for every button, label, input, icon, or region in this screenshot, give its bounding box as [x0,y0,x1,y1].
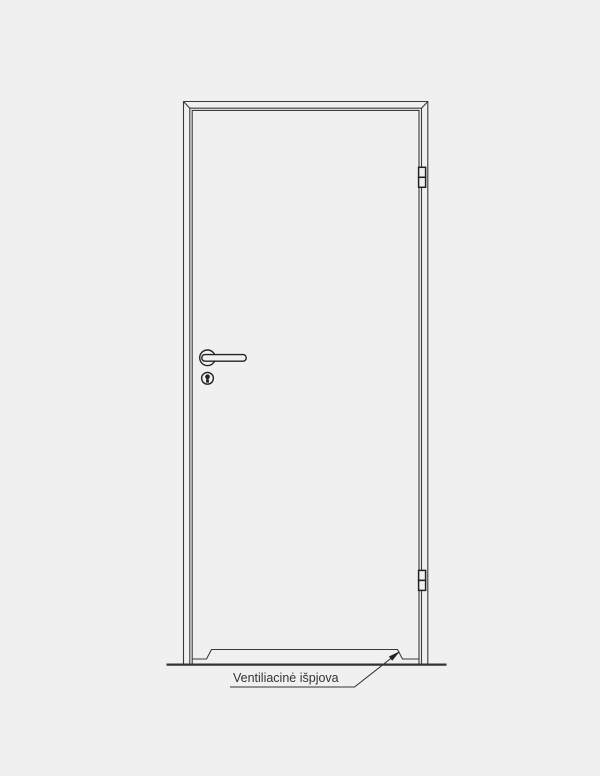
frame-miter-top-right [422,102,428,109]
hinge-top-upper-knuckle [419,167,426,177]
keyhole [202,372,214,384]
ventilation-label: Ventiliacinė išpjova [233,671,339,685]
hinge-bottom-lower-knuckle [419,580,426,590]
door-drawing-canvas: Ventiliacinė išpjova [0,0,600,776]
frame-inner-edge [190,108,422,664]
handle-lever [202,355,246,362]
hinge-top [419,167,426,187]
lever-handle [200,350,247,366]
ventilation-cutout [192,650,419,660]
door-leaf [192,110,419,664]
leaf-outline [192,110,419,664]
door-frame [184,102,428,665]
hinge-bottom-upper-knuckle [419,570,426,580]
frame-outer-edge [184,102,428,665]
hinge-bottom [419,570,426,590]
frame-miter-top-left [184,102,190,109]
hinge-top-lower-knuckle [419,177,426,187]
door-elevation-drawing: Ventiliacinė išpjova [0,0,600,776]
